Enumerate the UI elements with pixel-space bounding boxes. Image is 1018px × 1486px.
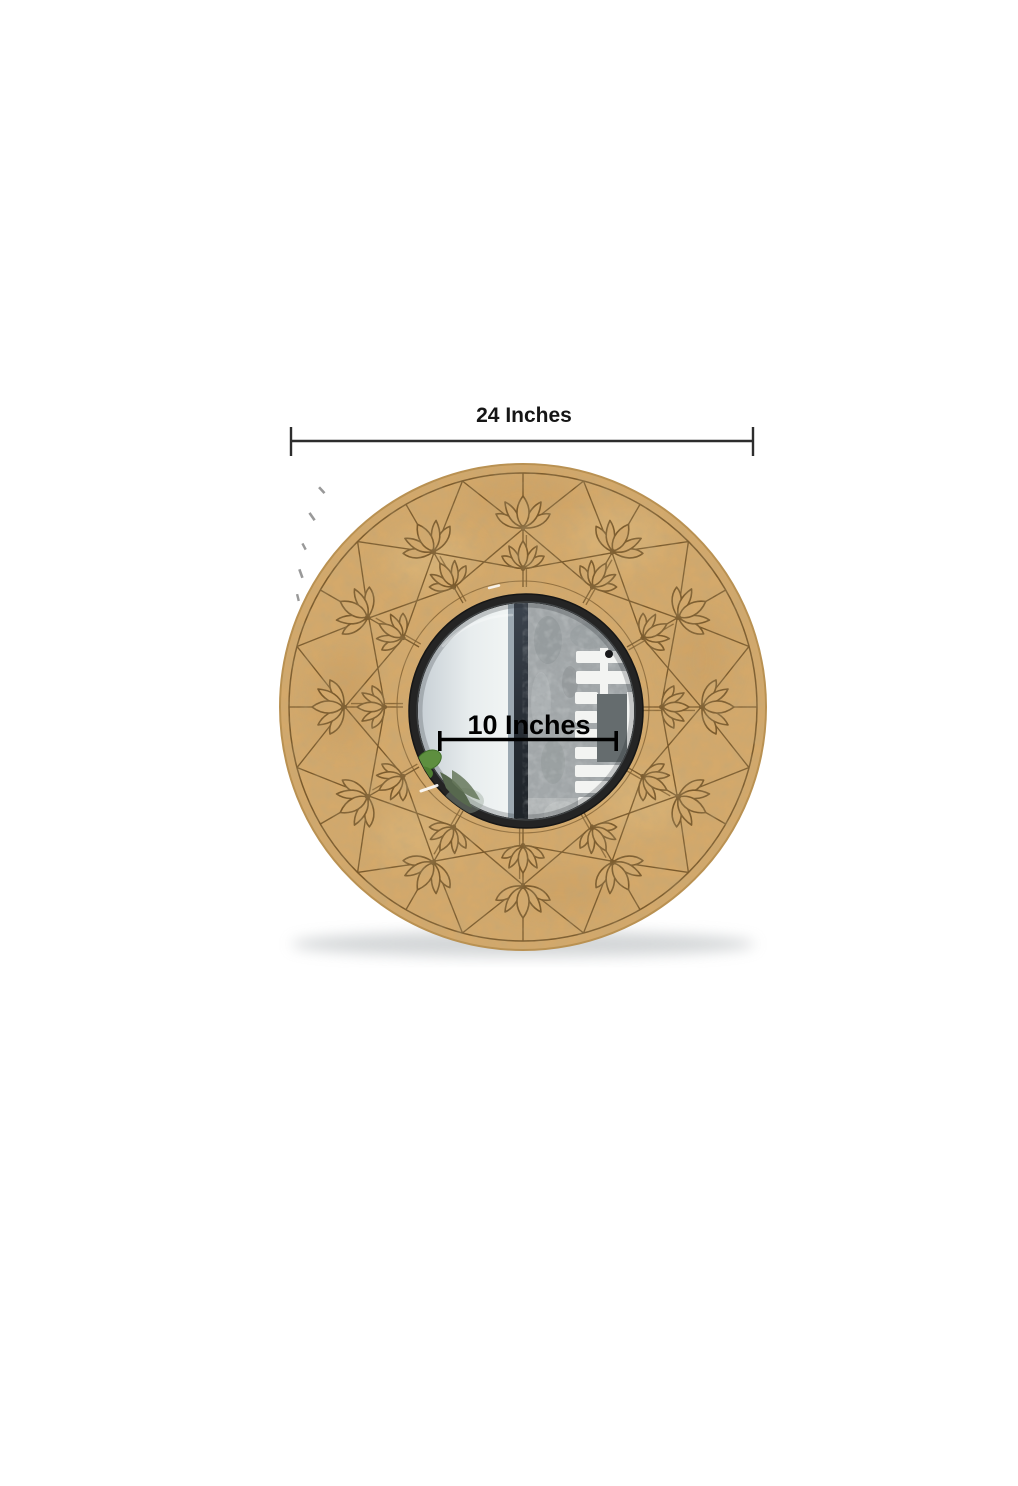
product-dimension-figure: 24 Inches 10 Inches bbox=[0, 0, 1018, 1486]
outer-dimension-label: 24 Inches bbox=[476, 404, 572, 427]
outer-dimension-annotation: 24 Inches bbox=[291, 404, 753, 456]
mirror-dimension-diagram: 24 Inches 10 Inches bbox=[0, 0, 1018, 1486]
inner-dimension-label: 10 Inches bbox=[467, 710, 590, 740]
outer-dimension-line bbox=[291, 427, 753, 456]
